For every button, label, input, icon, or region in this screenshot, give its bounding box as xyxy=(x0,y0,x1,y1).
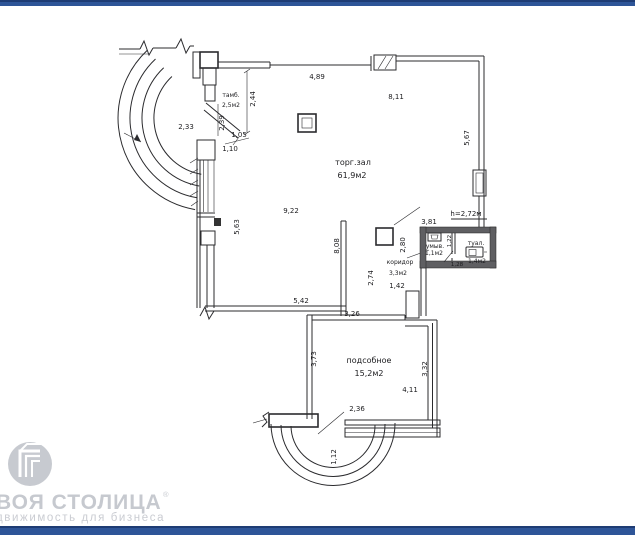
dim-bath-width: 3,81 xyxy=(421,218,437,226)
corridor-walls xyxy=(341,207,429,318)
dim-tambour-inner: 2,39 xyxy=(218,115,226,131)
room-label-tambour: тамб. xyxy=(222,92,239,99)
dim-corridor-left: 2,74 xyxy=(367,270,375,286)
column xyxy=(376,228,393,245)
room-label-utility: подсобное xyxy=(347,356,392,365)
logo-circle xyxy=(8,442,52,486)
left-wall xyxy=(197,140,221,319)
room-label-toilet: туал. xyxy=(468,240,485,247)
dim-left-wall: 5,63 xyxy=(233,219,241,235)
dim-bay-depth: 1,12 xyxy=(330,449,338,465)
dim-top-wall: 4,89 xyxy=(309,73,325,81)
dim-tambour-depth: 2,44 xyxy=(249,91,257,107)
room-area-hall: 61,9м2 xyxy=(338,171,367,180)
dim-opening-a: 1,05 xyxy=(231,131,247,139)
washbasin-icon xyxy=(428,233,441,241)
dim-toilet-width: 1,28 xyxy=(451,262,464,268)
door-leaf xyxy=(406,291,419,318)
utility-walls xyxy=(253,315,440,437)
room-area-toilet: 1,4м2 xyxy=(468,258,486,265)
pilaster xyxy=(214,218,221,226)
dim-hall-bottom: 5,42 xyxy=(293,297,309,305)
entrance-door xyxy=(193,52,218,101)
watermark-logo: ВОЯ СТОЛИЦА ® движимость для бизнеса xyxy=(0,442,169,524)
room-area-utility: 15,2м2 xyxy=(355,369,384,378)
room-area-washroom: 1,1м2 xyxy=(425,250,443,257)
dim-opening-b: 1,10 xyxy=(222,145,238,153)
dim-corridor-right: 2,80 xyxy=(399,237,407,253)
dim-utility-top: 3,26 xyxy=(344,310,360,318)
floor-plan: тамб. 2,5м2 торг.зал 61,9м2 коридор 3,3м… xyxy=(0,0,635,535)
logo-title: ВОЯ СТОЛИЦА xyxy=(0,491,162,514)
room-label-washroom: умыв. xyxy=(426,243,444,250)
dim-right-wall: 5,67 xyxy=(463,130,471,146)
dim-utility-right: 3,32 xyxy=(421,361,429,377)
logo-registered-mark: ® xyxy=(163,490,169,499)
dim-arc-left: 2,33 xyxy=(178,123,194,131)
logo-subtitle: движимость для бизнеса xyxy=(0,512,165,524)
room-area-corridor: 3,3м2 xyxy=(389,270,407,277)
dim-hall-length: 9,22 xyxy=(283,207,299,215)
dim-utility-width: 4,11 xyxy=(402,386,418,394)
walls xyxy=(118,39,496,485)
labels: тамб. 2,5м2 торг.зал 61,9м2 коридор 3,3м… xyxy=(178,73,486,465)
dim-utility-opening: 2,36 xyxy=(349,405,365,413)
room-label-corridor: коридор xyxy=(387,259,414,266)
room-area-tambour: 2,5м2 xyxy=(222,102,240,109)
dim-hall-width-top: 8,11 xyxy=(388,93,404,101)
dim-utility-left: 3,73 xyxy=(310,351,318,367)
dim-corridor-width: 1,42 xyxy=(389,282,405,290)
ceiling-height-label: h=2,72м xyxy=(450,210,481,218)
dimension-lines xyxy=(218,69,487,219)
hall-column xyxy=(298,114,316,132)
dim-hall-mid: 8,08 xyxy=(333,238,341,254)
room-label-hall: торг.зал xyxy=(335,158,371,167)
dim-bath-inner: 1,22 xyxy=(447,235,453,247)
arc-arrow xyxy=(134,134,141,142)
